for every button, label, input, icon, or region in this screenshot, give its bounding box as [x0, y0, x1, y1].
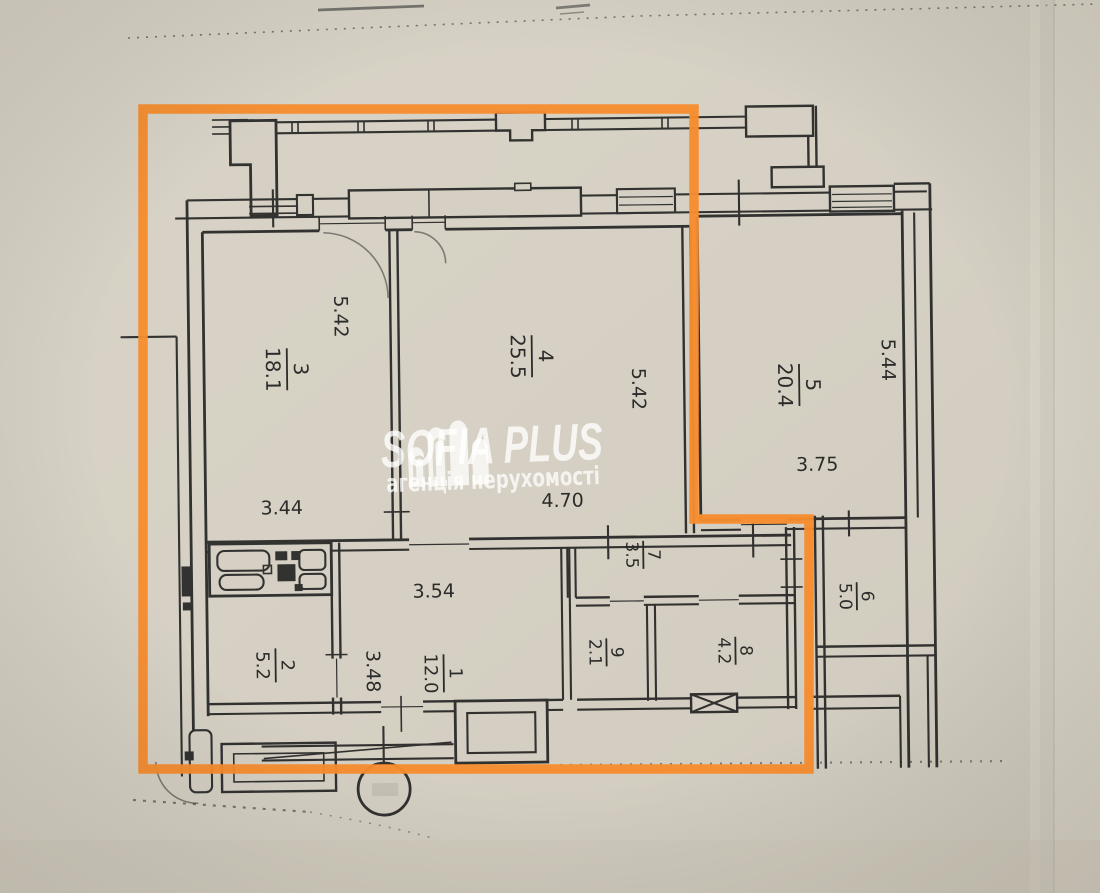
room-6-area: 5.0: [835, 583, 855, 610]
room-2-number: 2: [277, 659, 298, 671]
room-8-number: 8: [735, 645, 755, 656]
room-4-number: 4: [534, 350, 558, 363]
watermark: SOFIA PLUS агенція нерухомості: [380, 413, 605, 498]
window: [617, 188, 675, 213]
room-3-area: 18.1: [261, 347, 286, 392]
room4-width-dimension: 4.70: [541, 490, 584, 513]
room5-height-dimension: 5.44: [877, 339, 900, 382]
room3-height-dimension: 5.42: [329, 295, 352, 338]
riser: [181, 566, 192, 596]
room-4-area: 25.5: [506, 334, 531, 379]
room-3-number: 3: [289, 363, 313, 376]
room-1-number: 1: [445, 667, 466, 679]
floor-plan-canvas: 3 18.1 4 25.5 5 20.4 2 5.2 1: [0, 0, 1100, 893]
room-8-area: 4.2: [713, 637, 733, 664]
window-sill: [349, 188, 581, 219]
scanned-floor-plan-photo: 3 18.1 4 25.5 5 20.4 2 5.2 1: [0, 0, 1100, 893]
room-5-area: 20.4: [773, 363, 798, 408]
room-7-area: 3.5: [621, 541, 641, 568]
room5-width-dimension: 3.75: [796, 453, 839, 476]
room-2-area: 5.2: [251, 651, 272, 680]
room3-width-dimension: 3.44: [260, 497, 303, 520]
room-9-area: 2.1: [584, 639, 604, 666]
room4-height-dimension: 5.42: [627, 368, 650, 411]
room-1-area: 12.0: [419, 653, 440, 693]
balcony-end-block: [746, 106, 813, 137]
room-6-number: 6: [857, 591, 877, 602]
room-5-number: 5: [801, 378, 825, 391]
building-corner-step: [772, 167, 824, 188]
hall-height-dimension: 3.48: [361, 650, 384, 693]
radiator: [189, 730, 212, 792]
room-9-number: 9: [606, 647, 626, 658]
paper-bottom-shade: [0, 840, 1100, 893]
room-7-number: 7: [643, 549, 663, 560]
hall-width-dimension: 3.54: [412, 580, 455, 603]
